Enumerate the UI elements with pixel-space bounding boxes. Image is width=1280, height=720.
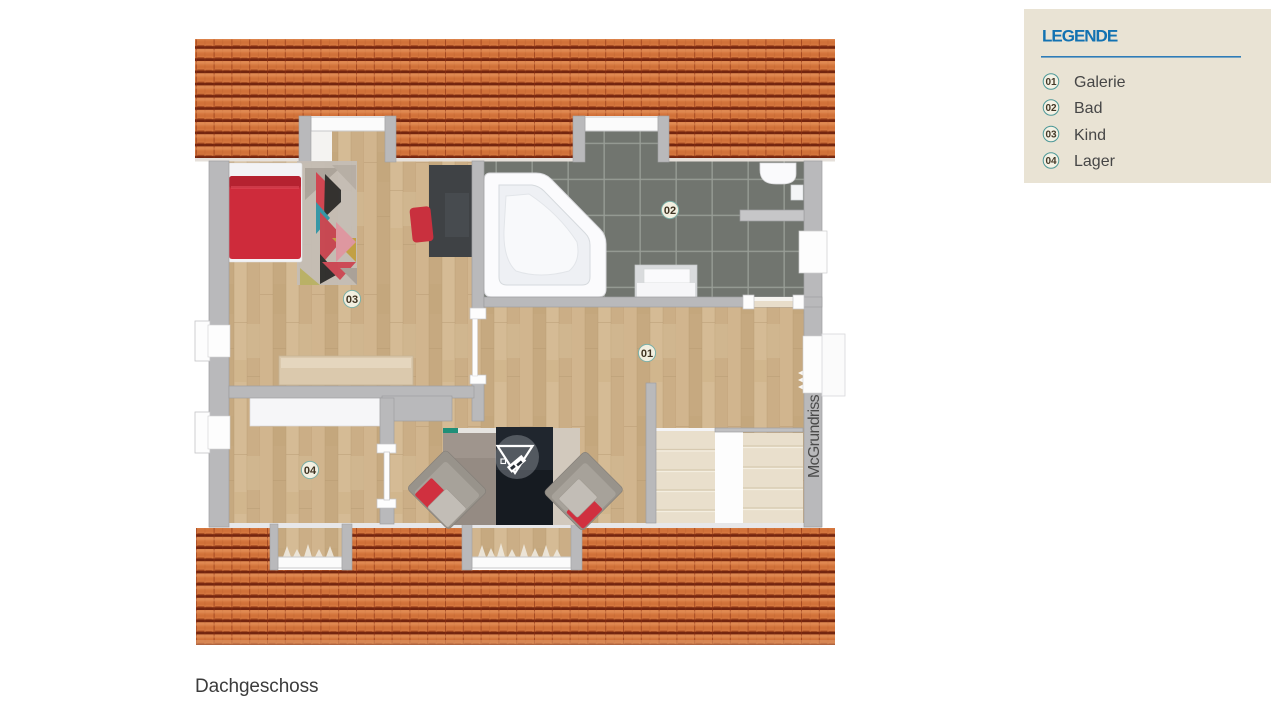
svg-text:Bad: Bad	[1074, 100, 1102, 117]
svg-text:04: 04	[1045, 156, 1057, 167]
svg-text:McGrundriss: McGrundriss	[806, 394, 823, 478]
svg-text:03: 03	[346, 294, 358, 306]
svg-text:04: 04	[304, 465, 317, 477]
svg-text:02: 02	[1045, 103, 1057, 114]
svg-text:01: 01	[641, 348, 653, 360]
svg-text:Dachgeschoss: Dachgeschoss	[195, 676, 318, 697]
svg-text:03: 03	[1045, 130, 1057, 141]
svg-text:01: 01	[1045, 77, 1057, 88]
svg-text:Lager: Lager	[1074, 153, 1116, 170]
svg-text:Kind: Kind	[1074, 127, 1106, 144]
svg-text:02: 02	[664, 205, 676, 217]
svg-text:LEGENDE: LEGENDE	[1042, 27, 1118, 46]
svg-text:Galerie: Galerie	[1074, 74, 1126, 91]
